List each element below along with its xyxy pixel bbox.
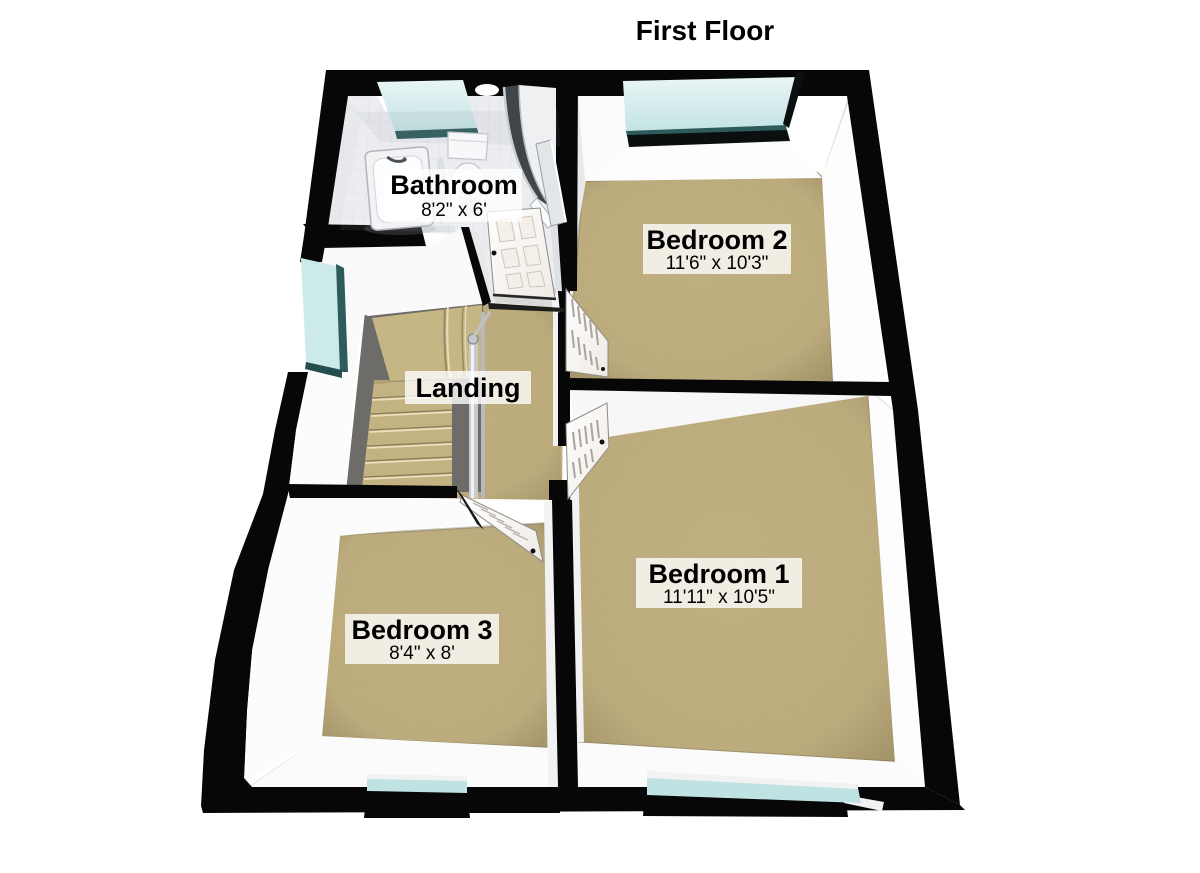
svg-text:8'4" x 8': 8'4" x 8' <box>389 643 455 664</box>
svg-text:8'2" x 6': 8'2" x 6' <box>421 200 487 221</box>
svg-text:Landing: Landing <box>416 373 521 403</box>
svg-text:Bedroom 2: Bedroom 2 <box>646 225 787 255</box>
svg-text:First Floor: First Floor <box>636 15 775 46</box>
svg-text:Bathroom: Bathroom <box>390 170 518 200</box>
svg-text:11'11" x 10'5": 11'11" x 10'5" <box>663 587 775 608</box>
svg-text:Bedroom 3: Bedroom 3 <box>351 615 492 645</box>
svg-text:11'6" x 10'3": 11'6" x 10'3" <box>666 253 769 274</box>
svg-text:Bedroom 1: Bedroom 1 <box>648 559 789 589</box>
